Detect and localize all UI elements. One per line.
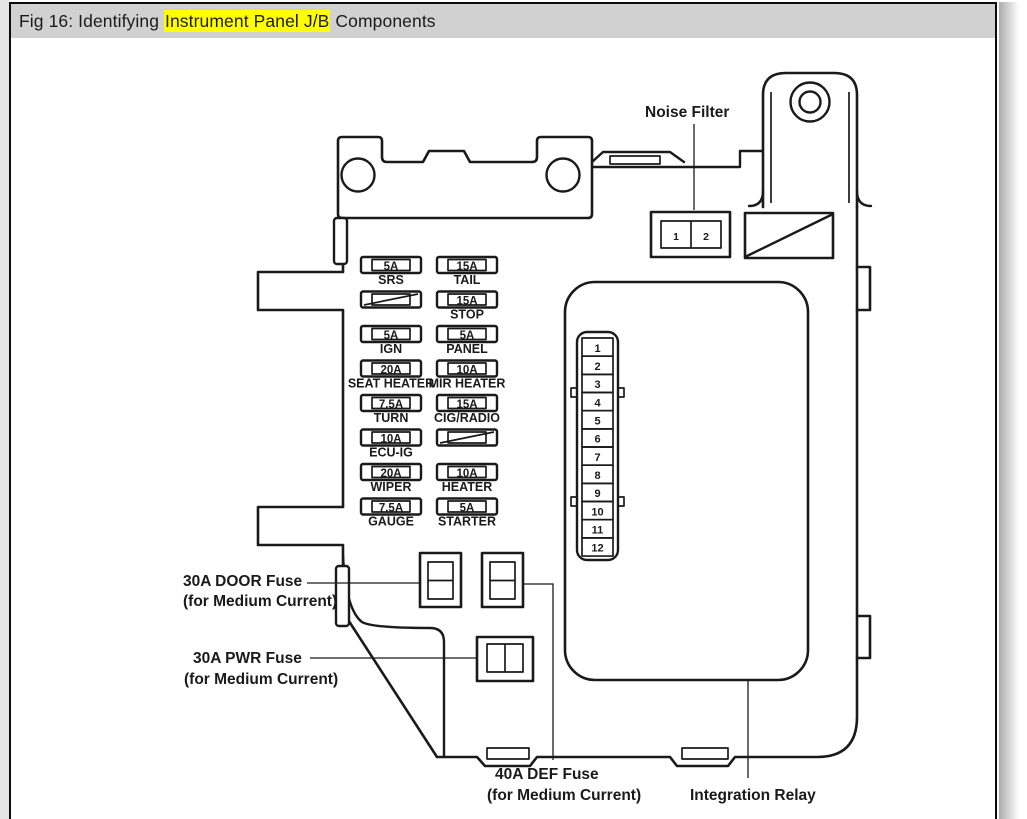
fuse-amp-rating: 5A (384, 261, 399, 273)
mount-tab-flare-right (857, 191, 871, 206)
fuse-spare (437, 430, 497, 446)
fuse-box-diagram: Noise Filter 1 2 123456789101112 5ASRS5A… (0, 0, 1027, 819)
fuse-amp-rating: 5A (384, 330, 399, 342)
noise-filter-label: Noise Filter (645, 104, 729, 121)
mounting-bracket (338, 137, 592, 218)
fuse-amp-rating: 15A (456, 399, 477, 411)
relay-pin-number: 4 (594, 397, 601, 409)
fuse-name: SEAT HEATER (348, 377, 434, 391)
edge-clip-lower (336, 566, 349, 626)
relay-pin-group: 123456789101112 (582, 338, 613, 556)
door-fuse-label-line1: 30A DOOR Fuse (183, 573, 303, 590)
noise-filter-pin-2: 2 (703, 231, 709, 243)
relay-pin-number: 2 (594, 361, 600, 373)
fuse-amp-rating: 10A (456, 468, 477, 480)
fuse-name: TURN (374, 411, 409, 425)
relay-pin-number: 3 (594, 379, 600, 391)
fuse-name: MIR HEATER (429, 377, 506, 391)
def-fuse-label-line1: 40A DEF Fuse (495, 766, 599, 783)
right-edge-tab-lower (857, 616, 870, 658)
relay-pin-number: 6 (594, 434, 600, 446)
fuse-amp-rating: 20A (380, 468, 401, 480)
fuse-amp-rating: 7.5A (379, 399, 403, 411)
def-fuse-leader (523, 584, 553, 760)
relay-pin-number: 5 (594, 415, 600, 427)
fuse-ecu-ig: 10AECU-IG (361, 430, 421, 460)
fuse-name: CIG/RADIO (434, 411, 500, 425)
spade-terminal (592, 152, 684, 162)
fuse-srs: 5ASRS (361, 257, 421, 287)
fuse-amp-rating: 15A (456, 261, 477, 273)
def-fuse-label-line2: (for Medium Current) (487, 787, 641, 804)
relay-pin-number: 9 (594, 488, 600, 500)
fuse-name: IGN (380, 342, 402, 356)
hatched-relay-slot-diagonal (747, 215, 831, 256)
bottom-tab-left (487, 748, 529, 759)
relay-pin-number: 8 (594, 470, 600, 482)
fuse-seat-heater: 20ASEAT HEATER (348, 361, 434, 391)
fuse-amp-rating: 5A (460, 503, 475, 515)
fuse-mir-heater: 10AMIR HEATER (429, 361, 506, 391)
mount-hole-outer (791, 83, 830, 122)
fuse-name: PANEL (446, 342, 488, 356)
relay-pin-number: 12 (591, 543, 603, 555)
fuse-turn: 7.5ATURN (361, 395, 421, 425)
junction-block-outline (258, 207, 857, 766)
fuse-starter: 5ASTARTER (437, 499, 497, 529)
fuse-column-right: 15ATAIL15ASTOP5APANEL10AMIR HEATER15ACIG… (429, 257, 506, 529)
pwr-fuse-label-line2: (for Medium Current) (184, 671, 338, 688)
mount-tab-outline (763, 73, 857, 207)
fuse-heater: 10AHEATER (437, 464, 497, 494)
fuse-column-left: 5ASRS5AIGN20ASEAT HEATER7.5ATURN10AECU-I… (348, 257, 434, 529)
edge-clip-upper (334, 218, 347, 264)
fuse-wiper: 20AWIPER (361, 464, 421, 494)
fuse-ign: 5AIGN (361, 326, 421, 356)
fuse-name: SRS (378, 273, 404, 287)
bottom-tab-right (682, 748, 728, 759)
fuse-name: ECU-IG (369, 446, 413, 460)
relay-pin-number: 11 (592, 525, 604, 537)
door-fuse-label-line2: (for Medium Current) (183, 593, 337, 610)
spade-terminal-slot (610, 156, 660, 164)
fuse-name: STOP (450, 308, 484, 322)
fuse-name: GAUGE (368, 515, 414, 529)
mount-hole-inner (800, 92, 821, 113)
fuse-cig-radio: 15ACIG/RADIO (434, 395, 500, 425)
fuse-tail: 15ATAIL (437, 257, 497, 287)
right-edge-tab-upper (857, 267, 870, 310)
fuse-amp-rating: 20A (380, 365, 401, 377)
fuse-stop: 15ASTOP (437, 292, 497, 322)
fuse-amp-rating: 10A (380, 434, 401, 446)
pwr-fuse-label-line1: 30A PWR Fuse (193, 650, 302, 667)
relay-pin-number: 7 (594, 452, 600, 464)
fuse-gauge: 7.5AGAUGE (361, 499, 421, 529)
mount-tab-flare-left (749, 191, 763, 206)
fuse-amp-rating: 10A (456, 365, 477, 377)
relay-pin-number: 1 (594, 343, 600, 355)
fuse-name: HEATER (442, 480, 492, 494)
noise-filter-pin-1: 1 (673, 231, 679, 243)
fuse-name: WIPER (371, 480, 412, 494)
fuse-amp-rating: 7.5A (379, 503, 403, 515)
fuse-amp-rating: 5A (460, 330, 475, 342)
fuse-spare (361, 292, 421, 308)
bracket-hole-right (547, 159, 580, 192)
fuse-panel: 5APANEL (437, 326, 497, 356)
integration-relay-outline (565, 282, 808, 680)
bracket-hole-left (342, 159, 375, 192)
fuse-amp-rating: 15A (456, 296, 477, 308)
fuse-name: TAIL (454, 273, 481, 287)
integration-relay-label: Integration Relay (690, 787, 816, 804)
relay-pin-number: 10 (591, 506, 603, 518)
fuse-name: STARTER (438, 515, 496, 529)
